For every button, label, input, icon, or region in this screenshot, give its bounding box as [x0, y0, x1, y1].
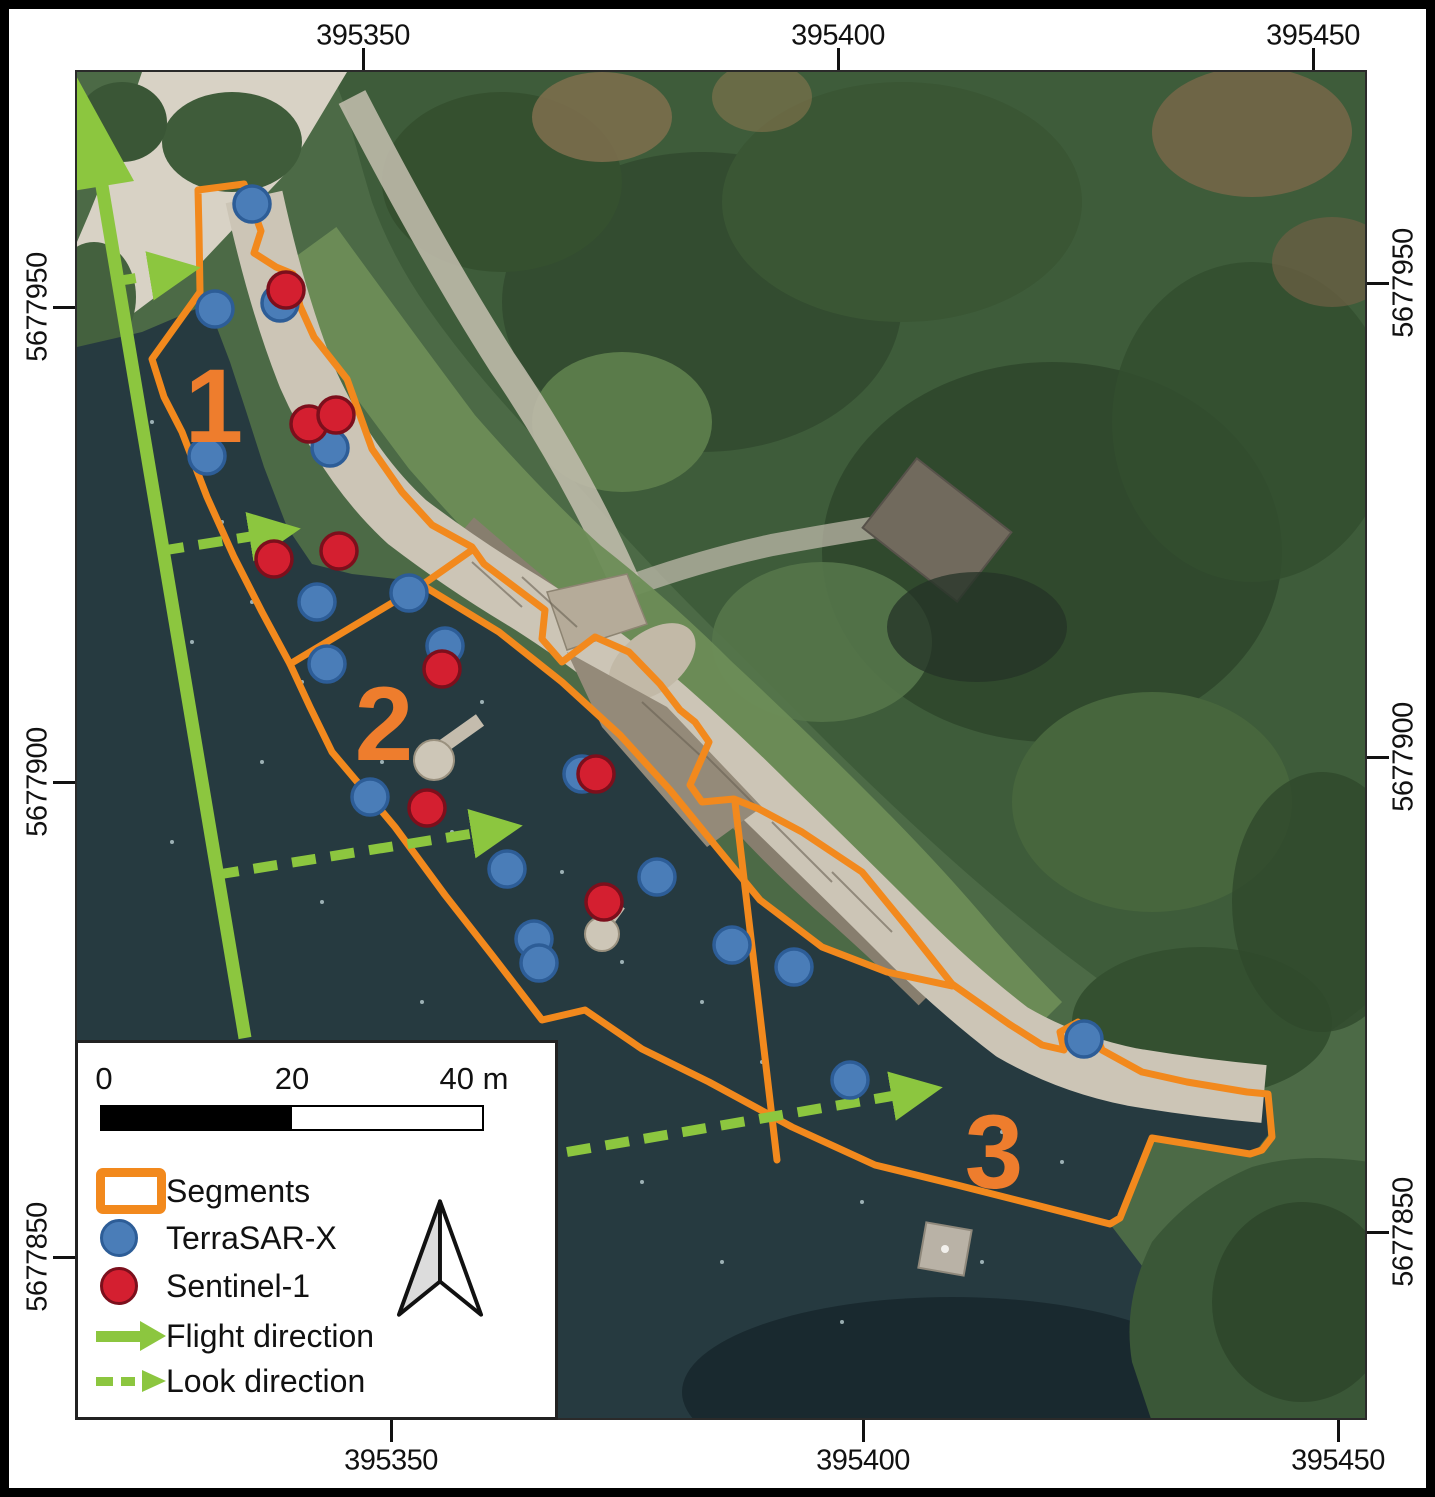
terrasar-x-point	[1066, 1021, 1102, 1057]
legend-label: TerraSAR-X	[166, 1220, 337, 1257]
roadside-bushes	[162, 92, 302, 192]
axis-tick	[1337, 1420, 1340, 1442]
legend: 0 20 40 m Segments TerraSAR-X Sentinel-1…	[75, 1040, 558, 1420]
terrasar-x-point	[352, 779, 388, 815]
axis-tick	[1312, 48, 1315, 70]
flight-direction-icon	[96, 1318, 166, 1354]
terrasar-x-point	[197, 291, 233, 327]
sentinel-1-point	[268, 272, 304, 308]
terrasar-x-point	[776, 949, 812, 985]
segments-swatch	[96, 1168, 166, 1214]
axis-tick	[390, 1420, 393, 1442]
axis-label-right: 5677850	[1388, 1177, 1421, 1286]
scalebar-tick-40m: 40 m	[440, 1061, 509, 1097]
building-shadow	[887, 572, 1067, 682]
terrasar-x-point	[832, 1062, 868, 1098]
segment-label-2: 2	[355, 666, 413, 783]
axis-tick	[1367, 756, 1389, 759]
legend-label: Segments	[166, 1173, 310, 1210]
terrasar-x-point	[234, 186, 270, 222]
sentinel-1-point	[256, 541, 292, 577]
north-arrow-icon	[396, 1198, 484, 1318]
turret	[585, 917, 619, 951]
scale-bar	[100, 1105, 484, 1131]
terrasar-x-point	[521, 945, 557, 981]
terrasar-x-point	[309, 646, 345, 682]
terrasar-x-point	[714, 927, 750, 963]
axis-label-right: 5677950	[1388, 228, 1421, 337]
axis-tick	[53, 781, 75, 784]
sentinel-1-point	[318, 397, 354, 433]
legend-item-terrasar: TerraSAR-X	[96, 1215, 337, 1261]
look-direction-icon	[96, 1367, 166, 1395]
axis-tick	[53, 1256, 75, 1259]
sentinel-1-point	[578, 756, 614, 792]
axis-label-left: 5677900	[22, 727, 55, 836]
axis-tick	[862, 1420, 865, 1442]
axis-tick	[53, 306, 75, 309]
axis-tick	[1367, 282, 1389, 285]
axis-label-bottom: 395350	[344, 1445, 438, 1478]
legend-item-look-direction: Look direction	[96, 1358, 365, 1404]
terrasar-x-point	[489, 851, 525, 887]
sentinel-1-point	[586, 884, 622, 920]
axis-tick	[362, 48, 365, 70]
sentinel-1-point	[321, 533, 357, 569]
brown-trees	[532, 72, 672, 162]
legend-item-sentinel: Sentinel-1	[96, 1263, 310, 1309]
dock-dot	[941, 1245, 949, 1253]
segment-label-3: 3	[965, 1094, 1023, 1211]
legend-label: Flight direction	[166, 1318, 374, 1355]
legend-item-segments: Segments	[96, 1168, 310, 1214]
axis-label-bottom: 395400	[816, 1445, 910, 1478]
terrasar-x-point	[639, 859, 675, 895]
axis-label-left: 5677950	[22, 252, 55, 361]
segment-label-1: 1	[185, 348, 243, 465]
legend-label: Look direction	[166, 1363, 365, 1400]
sentinel-1-swatch	[100, 1267, 138, 1305]
scalebar-tick-20: 20	[275, 1061, 309, 1097]
legend-label: Sentinel-1	[166, 1268, 310, 1305]
axis-tick	[837, 48, 840, 70]
sentinel-1-point	[424, 651, 460, 687]
scalebar-tick-0: 0	[95, 1061, 112, 1097]
axis-label-right: 5677900	[1388, 702, 1421, 811]
terrasar-x-point	[391, 575, 427, 611]
turret	[414, 740, 454, 780]
map-figure: 395350 395400 395450 395350 395400 39545…	[0, 0, 1435, 1497]
axis-tick	[1367, 1231, 1389, 1234]
legend-item-flight-direction: Flight direction	[96, 1313, 374, 1359]
brown-trees	[1152, 72, 1352, 197]
axis-label-left: 5677850	[22, 1202, 55, 1311]
sentinel-1-point	[409, 790, 445, 826]
terrasar-x-swatch	[100, 1219, 138, 1257]
axis-label-bottom: 395450	[1291, 1445, 1385, 1478]
terrasar-x-point	[299, 584, 335, 620]
